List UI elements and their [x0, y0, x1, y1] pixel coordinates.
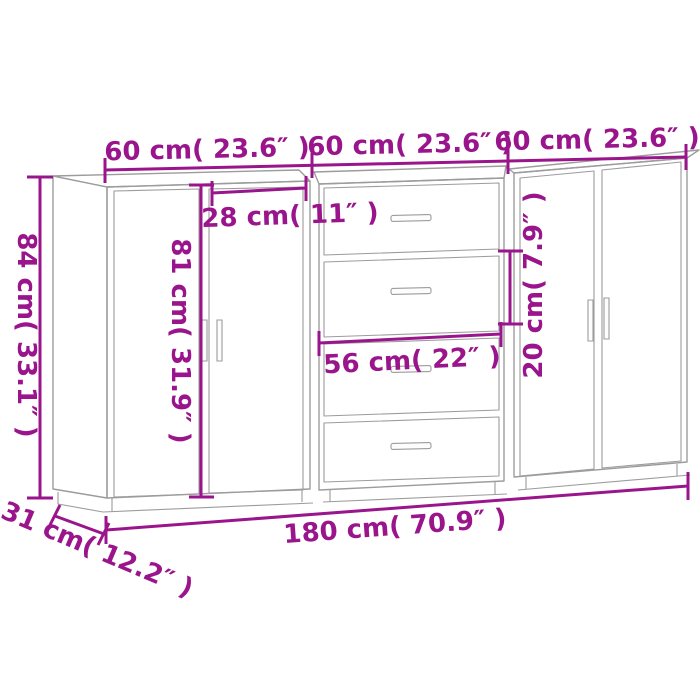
left-cabinet-plinth	[103, 503, 313, 512]
left-cabinet-side-face	[53, 176, 107, 498]
dim-label-door-height: 81 cm( 31.9″ )	[167, 238, 193, 443]
dim-label-drawer-height: 20 cm( 7.9″ )	[521, 191, 547, 378]
dim-label-total-height: 84 cm( 33.1″ )	[13, 232, 39, 437]
drawer-handle	[391, 214, 431, 221]
right-cabinet-door-right	[602, 162, 681, 468]
dim-label-unit-width-3: 60 cm( 23.6″ )	[494, 125, 700, 156]
dim-label-unit-width-2: 60 cm( 23.6″ )	[307, 130, 513, 161]
door-handle	[202, 320, 207, 361]
dimension-diagram: 60 cm( 23.6″ ) 60 cm( 23.6″ ) 60 cm( 23.…	[0, 0, 700, 700]
drawer-handle	[391, 442, 431, 449]
drawer-handle	[391, 287, 431, 294]
door-handle	[588, 300, 593, 341]
dim-label-door-width: 28 cm( 11″ )	[201, 200, 379, 232]
dim-label-unit-width-1: 60 cm( 23.6″ )	[104, 135, 310, 166]
door-handle	[217, 320, 222, 361]
door-handle	[604, 298, 609, 339]
drawer-2	[324, 256, 499, 337]
left-cabinet-side-plinth	[58, 492, 103, 512]
